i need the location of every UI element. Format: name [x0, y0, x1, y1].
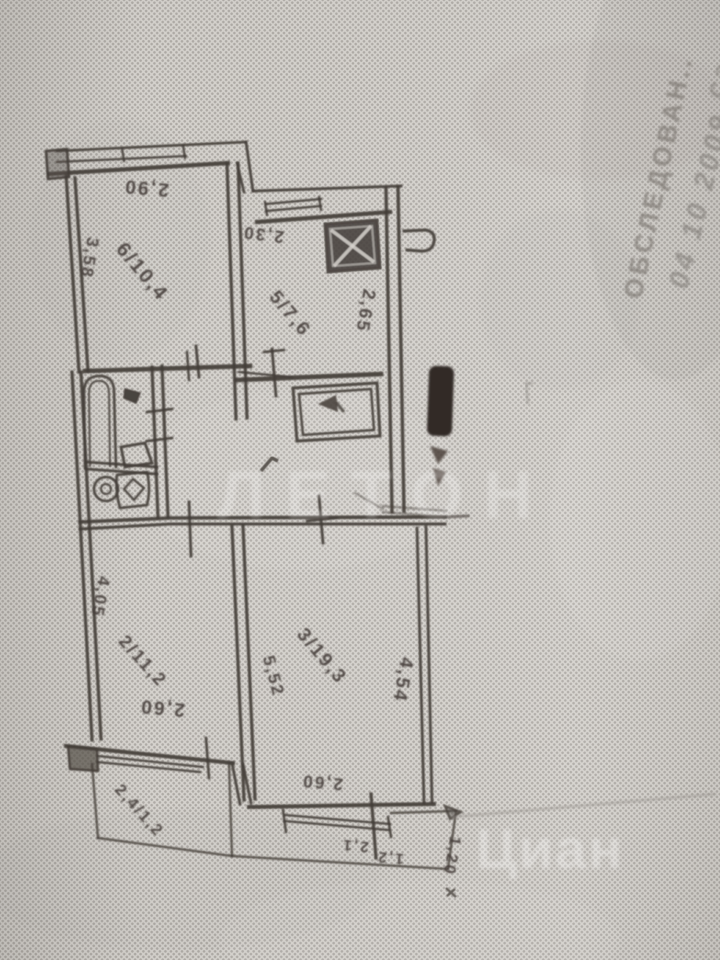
svg-text:ЛЕТОН: ЛЕТОН: [218, 457, 553, 533]
svg-text:2,1: 2,1: [341, 836, 370, 855]
svg-text:Циан: Циан: [476, 817, 624, 880]
svg-text:1,2: 1,2: [376, 848, 405, 867]
svg-text:2,60: 2,60: [138, 695, 185, 720]
svg-text:2,90: 2,90: [122, 175, 169, 200]
svg-text:2,60: 2,60: [300, 771, 343, 794]
